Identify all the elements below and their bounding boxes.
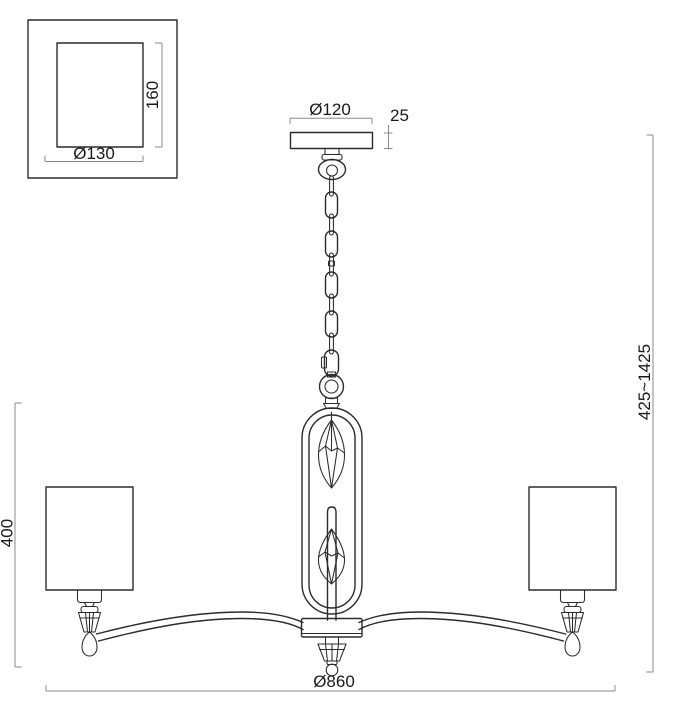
arm-upper-line bbox=[97, 612, 304, 634]
technical-drawing-page: 160 Ø130 Ø120 25 bbox=[0, 0, 677, 720]
dim-plan-height: 160 bbox=[143, 43, 162, 147]
dim-label-canopy-diameter: Ø120 bbox=[309, 100, 351, 119]
arm-upper-line bbox=[359, 612, 566, 634]
ceiling-canopy: Ø120 25 bbox=[290, 100, 409, 180]
arm-lower-line bbox=[359, 619, 564, 642]
hub-box bbox=[302, 619, 363, 638]
dim-label-plan-width: Ø130 bbox=[73, 144, 115, 163]
dim-label-body-height: 400 bbox=[0, 519, 17, 547]
dim-label-hanging-height: 425~1425 bbox=[635, 344, 654, 420]
dim-canopy-diameter: Ø120 bbox=[290, 100, 372, 124]
lamp-socket bbox=[78, 590, 102, 603]
teardrop-connector bbox=[565, 632, 580, 656]
center-rod bbox=[328, 507, 337, 620]
dim-hanging-height: 425~1425 bbox=[635, 135, 654, 672]
lamp-socket bbox=[561, 590, 585, 603]
dim-label-plan-height: 160 bbox=[143, 81, 162, 109]
canopy-loop-inner bbox=[327, 165, 338, 176]
lamp-shade bbox=[529, 487, 616, 590]
stem-collar bbox=[568, 603, 578, 607]
canopy-nipple bbox=[325, 149, 339, 155]
teardrop-connector bbox=[82, 632, 97, 656]
stem-collar bbox=[85, 603, 95, 607]
right-arm-assembly bbox=[359, 487, 616, 656]
stem-flange bbox=[81, 607, 98, 613]
center-hub bbox=[302, 619, 363, 676]
dim-label-overall-width: Ø860 bbox=[313, 672, 355, 691]
plan-inner-rect bbox=[57, 43, 143, 147]
suspension-chain bbox=[320, 176, 344, 409]
pendant-frame bbox=[302, 408, 362, 620]
crystal-drop-upper bbox=[319, 412, 345, 488]
chandelier-drawing: 160 Ø130 Ø120 25 bbox=[0, 0, 677, 720]
canopy-plate bbox=[291, 133, 373, 149]
dim-canopy-thickness: 25 bbox=[384, 106, 409, 149]
dim-overall-width: Ø860 bbox=[46, 672, 615, 691]
hanging-ring-inner bbox=[325, 380, 338, 393]
stem-flange bbox=[564, 607, 581, 613]
dim-label-canopy-thickness: 25 bbox=[390, 106, 409, 125]
canopy-plan-view: 160 Ø130 bbox=[28, 20, 177, 178]
dim-body-height: 400 bbox=[0, 403, 22, 667]
arm-lower-line bbox=[99, 619, 304, 642]
crystal-drop-lower bbox=[319, 529, 345, 584]
hanging-ring-outer bbox=[320, 375, 344, 399]
lamp-shade bbox=[46, 487, 133, 590]
finial-neck bbox=[326, 637, 339, 644]
left-arm-assembly bbox=[46, 487, 303, 656]
